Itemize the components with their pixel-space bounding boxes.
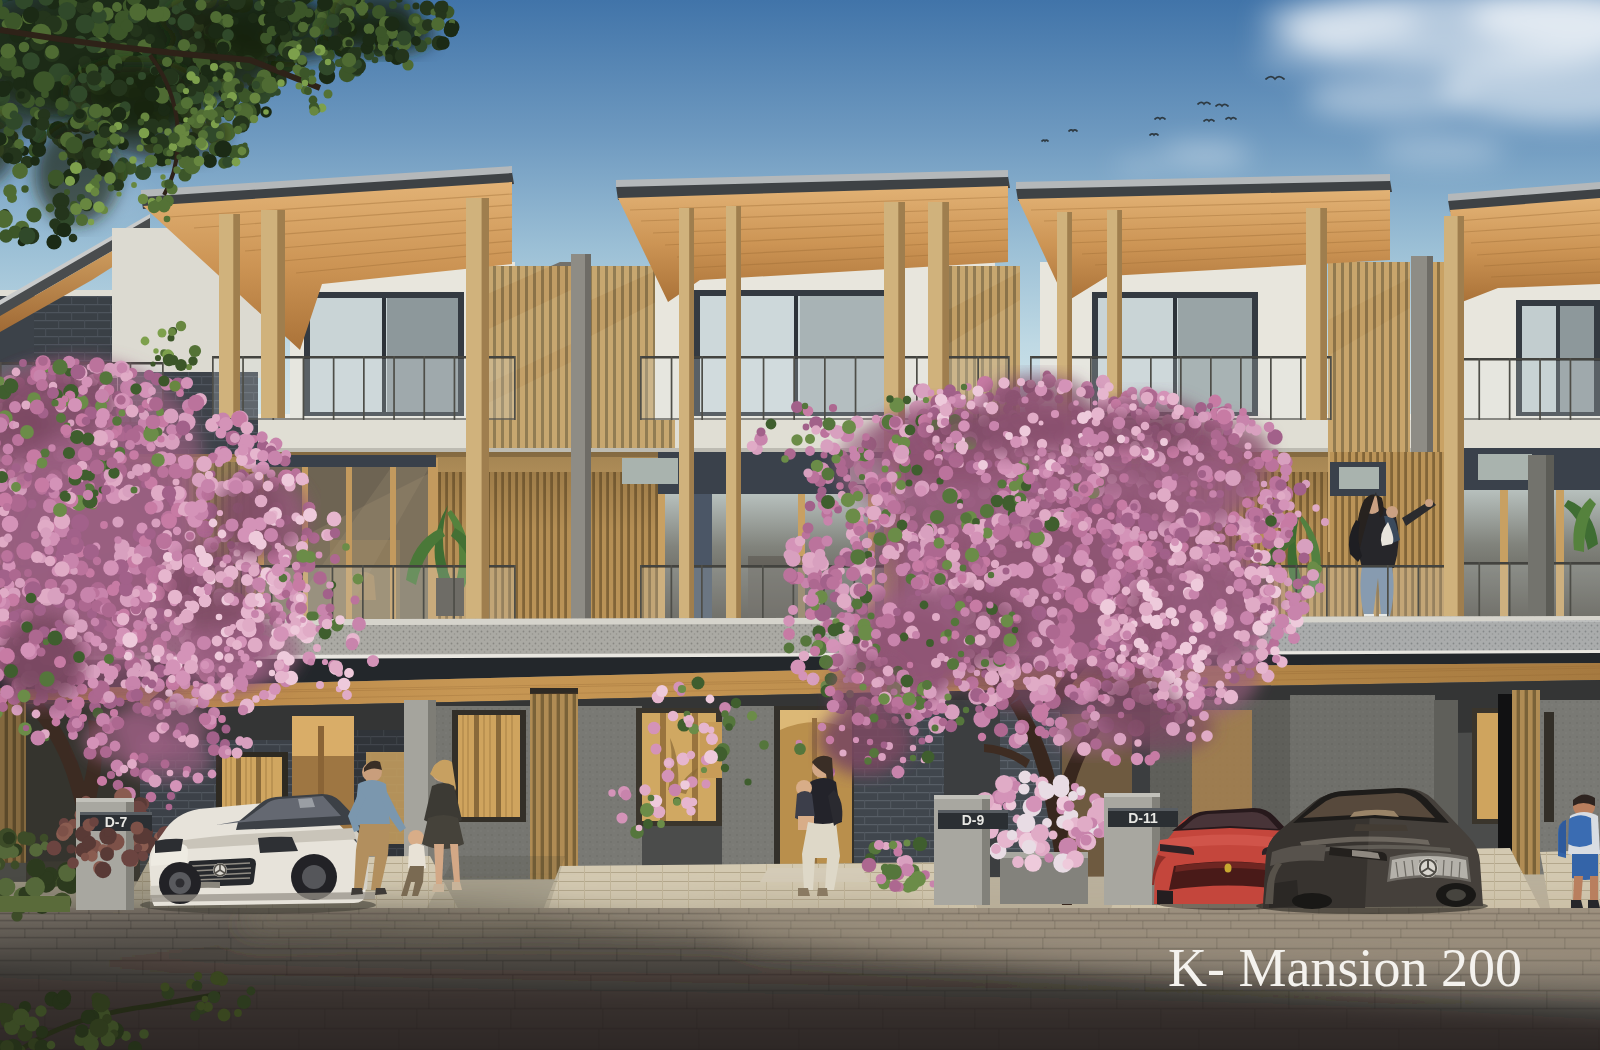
svg-text:D-9: D-9 — [962, 812, 985, 828]
svg-text:K- Mansion 200: K- Mansion 200 — [1168, 938, 1522, 998]
svg-text:D-11: D-11 — [1128, 810, 1158, 826]
